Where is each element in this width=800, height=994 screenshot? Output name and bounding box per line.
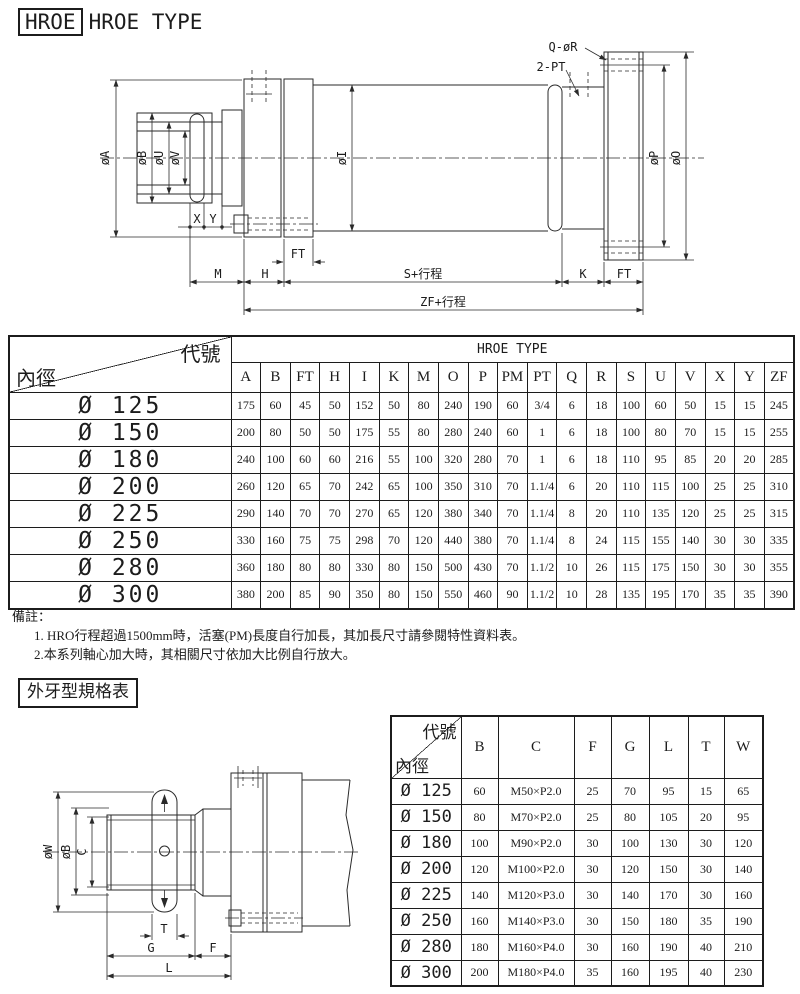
table-cell: 95 [724,804,763,830]
table-cell: 35 [574,960,611,986]
table-cell: 65 [724,778,763,804]
table-row: Ø 225290140707027065120380340701.1/48201… [9,500,794,527]
table-cell: 70 [611,778,649,804]
table-cell: 140 [261,500,291,527]
datasheet-page: HROE HROE TYPE [0,0,800,994]
table-cell: 1.1/2 [527,581,557,609]
table-cell: 330 [231,527,261,554]
table-cell: 115 [616,554,646,581]
table-cell: 550 [438,581,468,609]
dim-ft-left: FT [291,247,305,261]
table-cell: 35 [705,581,735,609]
table-cell: M160×P4.0 [498,934,574,960]
table-cell: 120 [409,527,439,554]
table-cell: 140 [611,882,649,908]
table-cell: 18 [587,446,617,473]
table-cell: 70 [498,473,528,500]
table-cell: 80 [379,581,409,609]
dim-dia-v: øV [168,151,182,165]
table-cell: 440 [438,527,468,554]
column-header: ZF [764,362,794,392]
column-header: X [705,362,735,392]
note-item: 2.本系列軸心加大時，其相關尺寸依加大比例自行放大。 [34,646,782,665]
table-cell: 26 [587,554,617,581]
dim-dia-b2: øB [59,845,73,859]
table-cell: M70×P2.0 [498,804,574,830]
table-cell: 60 [646,392,676,419]
table-cell: 30 [735,554,765,581]
table-cell: 120 [724,830,763,856]
table-cell: 65 [379,473,409,500]
dim-zf-stroke: ZF+行程 [420,294,466,309]
table-cell: 80 [409,419,439,446]
table-cell: 40 [688,960,724,986]
table-cell: 216 [350,446,380,473]
table-cell: 24 [587,527,617,554]
column-header: P [468,362,498,392]
table-cell: M180×P4.0 [498,960,574,986]
column-header: I [350,362,380,392]
table-cell: 1.1/4 [527,473,557,500]
table-cell: 390 [764,581,794,609]
table-cell: 85 [290,581,320,609]
table-cell: 310 [468,473,498,500]
dim-dia-w: øW [41,844,55,859]
column-header: A [231,362,261,392]
table-cell: 1 [527,446,557,473]
table-cell: 230 [724,960,763,986]
table-cell: 85 [675,446,705,473]
dim-ft-right: FT [617,267,631,281]
table-cell: 130 [649,830,688,856]
row-label: Ø 125 [391,778,461,804]
table-cell: 175 [646,554,676,581]
table-cell: 290 [231,500,261,527]
row-label: Ø 180 [391,830,461,856]
column-header: C [498,716,574,778]
table-cell: M140×P3.0 [498,908,574,934]
table-cell: 6 [557,419,587,446]
table-cell: 140 [461,882,498,908]
table-cell: 340 [468,500,498,527]
column-header: B [261,362,291,392]
dim-x: X [193,212,201,226]
dim-dia-p: øP [647,151,661,165]
dim-dia-o: øO [669,151,683,165]
table-cell: 30 [574,856,611,882]
table-cell: 25 [735,500,765,527]
table-cell: 80 [290,554,320,581]
column-header: V [675,362,705,392]
table-cell: 330 [350,554,380,581]
column-header: L [649,716,688,778]
table-cell: 25 [705,500,735,527]
table-cell: 285 [764,446,794,473]
table-cell: 180 [649,908,688,934]
table-cell: 75 [320,527,350,554]
table-cell: 30 [705,527,735,554]
dim-k: K [579,267,587,281]
table-cell: 350 [438,473,468,500]
table-cell: 100 [616,419,646,446]
table-cell: 195 [646,581,676,609]
table-cell: 8 [557,527,587,554]
table-cell: 298 [350,527,380,554]
table-cell: 200 [231,419,261,446]
table-cell: 115 [616,527,646,554]
table-cell: 75 [290,527,320,554]
table-cell: 40 [688,934,724,960]
table-cell: 60 [320,446,350,473]
table-cell: 160 [724,882,763,908]
corner-label-bore: 內徑 [395,752,429,777]
table-cell: 170 [675,581,705,609]
table-cell: M120×P3.0 [498,882,574,908]
corner-cell: 代號 內徑 [391,716,461,778]
column-header: H [320,362,350,392]
row-label: Ø 150 [9,419,231,446]
table-cell: 270 [350,500,380,527]
row-label: Ø 180 [9,446,231,473]
table-cell: 135 [616,581,646,609]
table-cell: 150 [409,554,439,581]
series-header: HROE TYPE [231,336,794,362]
notes-title: 備註： [12,608,782,627]
table-cell: 240 [468,419,498,446]
table-cell: 25 [705,473,735,500]
table-row: Ø 200260120657024265100350310701.1/46201… [9,473,794,500]
table-cell: 6 [557,392,587,419]
table-cell: 320 [438,446,468,473]
table-cell: 115 [646,473,676,500]
table-cell: 160 [611,934,649,960]
table-cell: 15 [705,392,735,419]
dim-h: H [261,267,268,281]
table-cell: 60 [498,419,528,446]
table-cell: 140 [724,856,763,882]
table-cell: 70 [320,500,350,527]
corner-cell: 代號 內徑 [9,336,231,392]
table-cell: 100 [675,473,705,500]
table-cell: 150 [611,908,649,934]
table-row: Ø 200120M100×P2.03012015030140 [391,856,763,882]
column-header: M [409,362,439,392]
table-cell: 30 [574,882,611,908]
table-cell: 100 [261,446,291,473]
table-cell: 65 [379,500,409,527]
external-thread-spec-table: 代號 內徑 BCFGLTW Ø 12560M50×P2.02570951565Ø… [390,715,764,987]
table-cell: 20 [705,446,735,473]
table-cell: 50 [675,392,705,419]
corner-label-code: 代號 [181,338,221,367]
table-cell: 20 [587,473,617,500]
table-cell: 315 [764,500,794,527]
table-cell: 6 [557,473,587,500]
table-cell: 100 [461,830,498,856]
column-header: S [616,362,646,392]
table-cell: 30 [688,856,724,882]
table-cell: 15 [688,778,724,804]
column-header: PT [527,362,557,392]
table-cell: 80 [409,392,439,419]
row-label: Ø 150 [391,804,461,830]
table-cell: 355 [764,554,794,581]
table-cell: 50 [320,392,350,419]
table-cell: 10 [557,554,587,581]
column-header: FT [290,362,320,392]
table-cell: M50×P2.0 [498,778,574,804]
table-cell: 80 [461,804,498,830]
table-cell: 1.1/2 [527,554,557,581]
table-row: Ø 15080M70×P2.025801052095 [391,804,763,830]
table-cell: 25 [574,804,611,830]
table-cell: 80 [646,419,676,446]
table-cell: 70 [498,446,528,473]
column-header: U [646,362,676,392]
table-cell: M100×P2.0 [498,856,574,882]
table-cell: 6 [557,446,587,473]
table-cell: 350 [350,581,380,609]
table-cell: 25 [735,473,765,500]
table-cell: 60 [498,392,528,419]
column-header: K [379,362,409,392]
row-label: Ø 300 [9,581,231,609]
table-cell: 175 [231,392,261,419]
table-cell: 335 [764,527,794,554]
table-cell: 170 [649,882,688,908]
table-cell: 200 [461,960,498,986]
table-cell: 30 [574,908,611,934]
dim-g: G [147,941,154,955]
table-cell: 460 [468,581,498,609]
dim-2pt: 2-PT [537,60,566,74]
table-cell: 50 [320,419,350,446]
table-cell: 30 [688,830,724,856]
table-row: Ø 280360180808033080150500430701.1/21026… [9,554,794,581]
table-cell: 255 [764,419,794,446]
table-cell: 310 [764,473,794,500]
table-cell: 120 [461,856,498,882]
column-header-row: 代號 內徑 BCFGLTW [391,716,763,778]
table-cell: 15 [735,419,765,446]
row-label: Ø 200 [391,856,461,882]
table-cell: 360 [231,554,261,581]
table-cell: 430 [468,554,498,581]
column-header: T [688,716,724,778]
table-cell: 30 [688,882,724,908]
dim-l: L [165,961,172,975]
table-cell: 240 [231,446,261,473]
table-row: Ø 300380200859035080150550460901.1/21028… [9,581,794,609]
table-cell: 280 [438,419,468,446]
table-cell: 1.1/4 [527,500,557,527]
table-cell: 25 [574,778,611,804]
table-cell: 180 [461,934,498,960]
row-label: Ø 225 [9,500,231,527]
table-cell: 380 [231,581,261,609]
table-cell: 70 [379,527,409,554]
table-cell: 240 [438,392,468,419]
table-cell: 190 [724,908,763,934]
table-row: Ø 300200M180×P4.03516019540230 [391,960,763,986]
dim-s-stroke: S+行程 [404,266,442,281]
row-label: Ø 225 [391,882,461,908]
table-cell: 500 [438,554,468,581]
table-cell: 20 [735,446,765,473]
table-cell: 120 [611,856,649,882]
table-cell: M90×P2.0 [498,830,574,856]
table-cell: 110 [616,500,646,527]
table-cell: 90 [498,581,528,609]
table-row: Ø 280180M160×P4.03016019040210 [391,934,763,960]
dim-f: F [209,941,216,955]
table-cell: 20 [688,804,724,830]
table-cell: 260 [231,473,261,500]
table-cell: 150 [409,581,439,609]
table-cell: 55 [379,419,409,446]
table-cell: 50 [379,392,409,419]
table-cell: 45 [290,392,320,419]
table-cell: 28 [587,581,617,609]
table-cell: 65 [290,473,320,500]
table-cell: 190 [649,934,688,960]
dim-dia-i: øI [335,151,349,165]
table-cell: 195 [649,960,688,986]
table-cell: 60 [261,392,291,419]
dim-y: Y [209,212,217,226]
table-cell: 280 [468,446,498,473]
column-header: B [461,716,498,778]
table-cell: 152 [350,392,380,419]
dim-q-r: Q-øR [549,40,579,54]
table-row: Ø 12560M50×P2.02570951565 [391,778,763,804]
table-row: Ø 250330160757529870120440380701.1/48241… [9,527,794,554]
corner-label-bore: 內徑 [16,362,56,391]
table-cell: 175 [350,419,380,446]
dim-m: M [214,267,221,281]
external-thread-section-title: 外牙型規格表 [18,678,138,708]
table-cell: 60 [290,446,320,473]
dim-dia-a: øA [98,150,112,165]
table-cell: 160 [461,908,498,934]
table-cell: 3/4 [527,392,557,419]
table-cell: 70 [498,500,528,527]
row-label: Ø 125 [9,392,231,419]
table-cell: 110 [616,446,646,473]
table-cell: 150 [649,856,688,882]
table-cell: 110 [616,473,646,500]
table-cell: 50 [290,419,320,446]
row-label: Ø 280 [9,554,231,581]
column-header: F [574,716,611,778]
notes-items: 1. HRO行程超過1500mm時，活塞(PM)長度自行加長，其加長尺寸請參閱特… [12,627,782,665]
table-row: Ø 1251756045501525080240190603/461810060… [9,392,794,419]
table-cell: 135 [646,500,676,527]
table-cell: 55 [379,446,409,473]
table-cell: 30 [574,830,611,856]
table-cell: 90 [320,581,350,609]
table-cell: 35 [735,581,765,609]
column-header: PM [498,362,528,392]
table-cell: 95 [649,778,688,804]
table-cell: 210 [724,934,763,960]
table-cell: 60 [461,778,498,804]
table-cell: 1.1/4 [527,527,557,554]
table-row: Ø 180100M90×P2.03010013030120 [391,830,763,856]
table-cell: 80 [261,419,291,446]
table-row: Ø 225140M120×P3.03014017030160 [391,882,763,908]
table-cell: 1 [527,419,557,446]
table-cell: 70 [290,500,320,527]
table-cell: 155 [646,527,676,554]
row-label: Ø 280 [391,934,461,960]
dim-dia-u: øU [152,151,166,165]
table-cell: 180 [261,554,291,581]
table-cell: 30 [735,527,765,554]
table-cell: 120 [261,473,291,500]
table-cell: 18 [587,392,617,419]
column-header: Q [557,362,587,392]
table-cell: 160 [611,960,649,986]
table-cell: 380 [468,527,498,554]
table-cell: 80 [320,554,350,581]
table-row: Ø 250160M140×P3.03015018035190 [391,908,763,934]
table-cell: 95 [646,446,676,473]
dim-dia-b: øB [135,151,149,165]
table-cell: 10 [557,581,587,609]
table-cell: 242 [350,473,380,500]
table-cell: 70 [498,527,528,554]
dim-c: C [75,848,89,855]
notes-block: 備註： 1. HRO行程超過1500mm時，活塞(PM)長度自行加長，其加長尺寸… [12,608,782,665]
table-cell: 8 [557,500,587,527]
table-cell: 35 [688,908,724,934]
table-cell: 100 [616,392,646,419]
table-cell: 380 [438,500,468,527]
table-cell: 80 [379,554,409,581]
table-cell: 80 [611,804,649,830]
row-label: Ø 200 [9,473,231,500]
table-cell: 20 [587,500,617,527]
table-cell: 15 [705,419,735,446]
hroe-dimension-table: 代號 內徑 HROE TYPE ABFTHIKMOPPMPTQRSUVXYZF … [8,335,795,610]
table-cell: 200 [261,581,291,609]
row-label: Ø 250 [391,908,461,934]
column-header: W [724,716,763,778]
column-header: Y [735,362,765,392]
table-cell: 120 [409,500,439,527]
table-cell: 100 [611,830,649,856]
column-header: G [611,716,649,778]
table-cell: 30 [705,554,735,581]
table-header-row: 代號 內徑 HROE TYPE [9,336,794,362]
table-cell: 70 [498,554,528,581]
table-cell: 70 [320,473,350,500]
table-cell: 160 [261,527,291,554]
table-cell: 70 [675,419,705,446]
column-header: R [587,362,617,392]
note-item: 1. HRO行程超過1500mm時，活塞(PM)長度自行加長，其加長尺寸請參閱特… [34,627,782,646]
column-header: O [438,362,468,392]
row-label: Ø 300 [391,960,461,986]
table-cell: 15 [735,392,765,419]
dim-t: T [160,922,167,936]
table-cell: 30 [574,934,611,960]
table-cell: 100 [409,473,439,500]
table-cell: 150 [675,554,705,581]
table-cell: 190 [468,392,498,419]
cylinder-drawing: Q-øR 2-PT øA øB øU øV øI øP øO X Y [0,10,800,330]
